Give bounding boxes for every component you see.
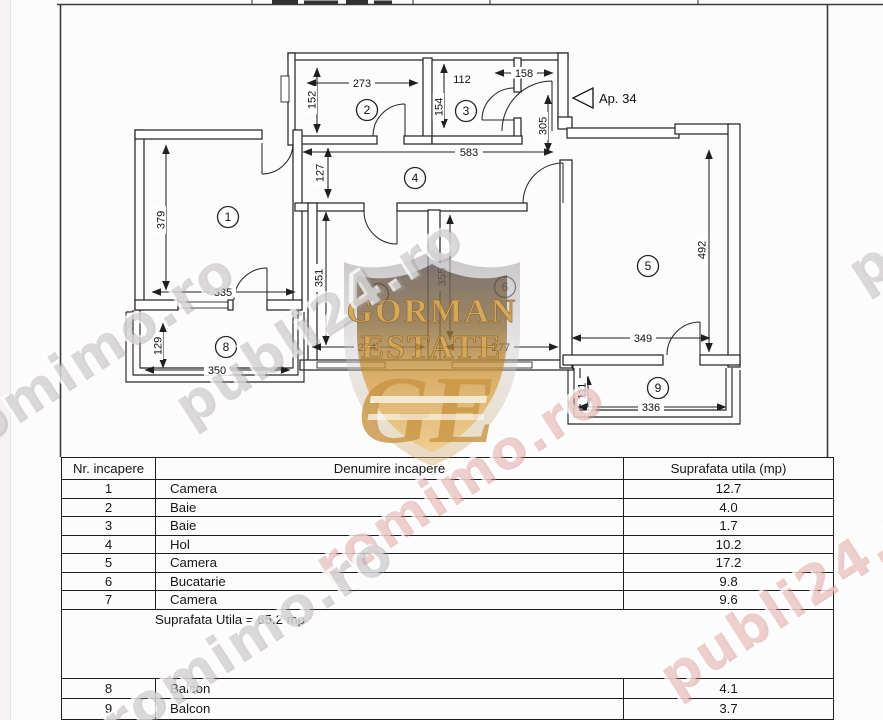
svg-text:2: 2: [364, 103, 371, 117]
svg-text:112: 112: [453, 74, 471, 86]
svg-text:273: 273: [353, 78, 371, 90]
svg-text:379: 379: [156, 211, 168, 229]
svg-text:277: 277: [492, 342, 510, 354]
room-number-8: 8: [216, 337, 237, 358]
room-number-3: 3: [456, 101, 477, 122]
room-number-2: 2: [357, 100, 378, 121]
dimension-305: 305: [537, 95, 550, 152]
dimension-152: 152: [306, 68, 319, 133]
dimension-127: 127: [314, 148, 329, 198]
table-row: 7 Camera 9.6: [62, 591, 834, 610]
entrance-arrow-icon: [573, 88, 593, 108]
svg-text:351: 351: [314, 269, 326, 287]
dimension-583: 583: [303, 146, 553, 159]
dimension-274: 274: [312, 341, 425, 354]
room-number-4: 4: [405, 168, 426, 189]
table-row: 5 Camera 17.2: [62, 554, 834, 573]
table-row: 4 Hol 10.2: [62, 535, 834, 554]
table-row: 8 Balcon 4.1: [62, 678, 834, 699]
svg-text:154: 154: [434, 98, 446, 116]
table-row: 9 Balcon 3.7: [62, 699, 834, 720]
svg-text:1: 1: [225, 210, 232, 224]
svg-text:5: 5: [645, 259, 652, 273]
room-number-9: 9: [648, 378, 669, 399]
svg-text:7: 7: [375, 287, 382, 301]
table-header-row: Nr. incapere Denumire incapere Suprafata…: [62, 458, 834, 480]
total-usable-area-note: Suprafata Utila = 65.2 mp: [62, 609, 834, 678]
room-number-7: 7: [368, 284, 389, 305]
apartment-entrance-label: Ap. 34: [573, 88, 637, 108]
room-number-6: 6: [495, 277, 516, 298]
cropped-text-remnant: [272, 0, 392, 4]
svg-text:274: 274: [358, 342, 376, 354]
header-nr: Nr. incapere: [62, 458, 156, 480]
table-row: 2 Baie 4.0: [62, 498, 834, 517]
svg-text:127: 127: [315, 164, 327, 182]
room-number-5: 5: [638, 256, 659, 277]
svg-text:129: 129: [153, 337, 165, 355]
dimension-273: 273: [307, 77, 418, 90]
room-number-1: 1: [218, 207, 239, 228]
total-note-row: Suprafata Utila = 65.2 mp: [62, 609, 834, 678]
svg-text:8: 8: [223, 340, 230, 354]
dimension-335: 335: [152, 286, 295, 299]
room-areas-table: Nr. incapere Denumire incapere Suprafata…: [61, 457, 834, 720]
svg-text:4: 4: [412, 171, 419, 185]
header-name: Denumire incapere: [156, 458, 624, 480]
svg-text:111: 111: [577, 383, 589, 400]
dimension-349: 349: [572, 332, 710, 345]
svg-text:158: 158: [515, 68, 533, 80]
dimension-336: 336: [578, 401, 726, 414]
svg-text:Ap. 34: Ap. 34: [599, 91, 637, 106]
header-area: Suprafata utila (mp): [624, 458, 834, 480]
table-row: 3 Baie 1.7: [62, 517, 834, 536]
svg-text:3: 3: [463, 104, 470, 118]
svg-text:583: 583: [460, 147, 478, 159]
svg-text:152: 152: [307, 91, 319, 109]
svg-text:9: 9: [655, 381, 662, 395]
page-frame: [57, 0, 883, 457]
svg-text:350: 350: [208, 365, 226, 377]
dimension-277: 277: [445, 341, 558, 354]
dimension-129: 129: [152, 323, 165, 368]
svg-text:492: 492: [697, 241, 709, 259]
dimension-158: 158: [495, 67, 553, 80]
svg-text:305: 305: [538, 117, 550, 135]
svg-text:335: 335: [214, 287, 232, 299]
svg-text:336: 336: [642, 402, 660, 414]
table-row: 6 Bucatarie 9.8: [62, 572, 834, 591]
svg-text:349: 349: [634, 333, 652, 345]
table-row: 1 Camera 12.7: [62, 480, 834, 499]
dimension-111: 111: [576, 376, 589, 407]
scanned-floorplan-page: 273 152 112 154 158: [0, 0, 883, 720]
svg-text:6: 6: [502, 280, 509, 294]
dimension-379: 379: [155, 145, 168, 290]
floor-plan-drawing: 273 152 112 154 158: [0, 0, 883, 457]
svg-text:355: 355: [437, 268, 449, 286]
